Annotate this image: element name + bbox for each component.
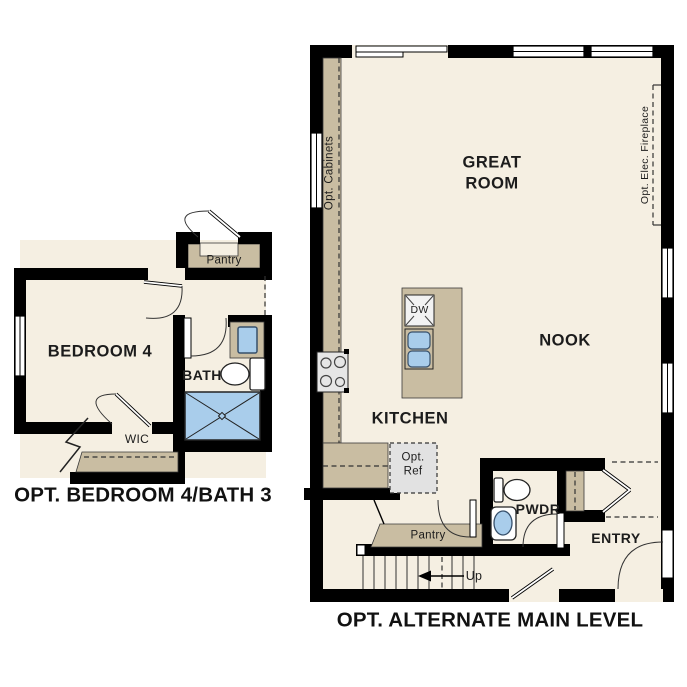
wall-kitchen	[304, 488, 400, 500]
door-leaf	[557, 513, 564, 548]
bedroom4-title: OPT. BEDROOM 4/BATH 3	[14, 483, 272, 510]
toilet-tank	[250, 358, 265, 390]
wall-pwdr-top	[480, 458, 605, 471]
bath-shower	[185, 392, 260, 440]
pantry-label-left: Pantry	[206, 254, 241, 269]
nook-label: NOOK	[539, 330, 591, 351]
pwdr-sink	[491, 507, 516, 540]
bath-vanity	[230, 322, 264, 358]
door-leaf	[470, 500, 476, 537]
wic-shelf	[76, 452, 178, 472]
sink-basin	[408, 332, 430, 349]
wall-right	[661, 45, 674, 602]
wall-closet-bottom	[562, 510, 605, 522]
toilet-bowl	[221, 363, 249, 385]
floorplan-canvas: GREAT ROOM NOOK KITCHEN PWDR ENTRY Pantr…	[0, 0, 687, 687]
opt-cabinets-label: Opt. Cabinets	[323, 136, 338, 210]
sink-basin	[238, 327, 257, 353]
opt-fireplace-label: Opt. Elec. Fireplace	[639, 106, 653, 204]
pwdr-label: PWDR	[516, 500, 561, 518]
door-leaf	[184, 318, 191, 358]
range-cooktop	[317, 349, 349, 393]
sink-basin	[494, 511, 512, 535]
bedroom4-label: BEDROOM 4	[48, 341, 152, 362]
main-level-title: OPT. ALTERNATE MAIN LEVEL	[337, 608, 643, 635]
door-opening	[615, 589, 663, 602]
toilet-tank	[494, 478, 503, 502]
main-level-plan	[304, 45, 674, 602]
wall-left	[310, 45, 323, 602]
kitchen-label: KITCHEN	[372, 408, 449, 429]
pwdr-toilet	[494, 478, 530, 502]
up-label: Up	[466, 568, 483, 584]
sliding-door-panel	[356, 52, 403, 57]
entry-label: ENTRY	[591, 529, 640, 547]
wic-label: WIC	[125, 432, 149, 448]
sliding-door-panel	[356, 46, 447, 52]
sink-basin	[408, 351, 430, 367]
dw-label: DW	[410, 304, 428, 318]
door-leaf	[662, 530, 673, 578]
opt-ref-label: Opt. Ref	[392, 451, 434, 480]
pantry-label-main: Pantry	[410, 529, 445, 544]
toilet-bowl	[504, 480, 530, 501]
great-room-label: GREAT ROOM	[446, 153, 538, 196]
door-jamb	[357, 545, 365, 555]
bath-label: BATH	[182, 366, 222, 384]
